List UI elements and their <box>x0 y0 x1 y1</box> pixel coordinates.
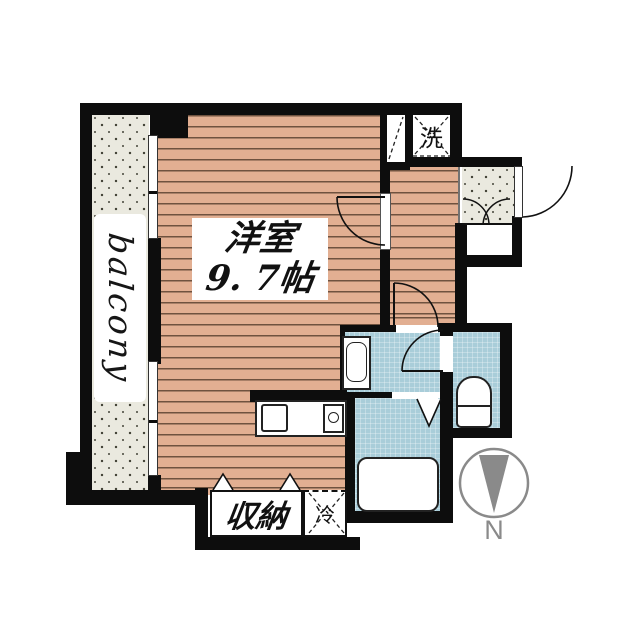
wall-northwest-block <box>150 108 188 138</box>
washroom-door-opening <box>396 325 438 333</box>
closet-label: 収納 <box>207 490 307 537</box>
room-name-text: 洋室 <box>222 219 298 259</box>
room-size-text: 9. 7帖 <box>203 259 317 299</box>
window-south <box>148 361 158 476</box>
stove-burner-icon <box>328 412 339 423</box>
hallway-floor <box>390 167 458 325</box>
compass-north-arrow-icon <box>479 455 509 513</box>
washbasin-bowl <box>346 342 367 382</box>
wall-shoebox-south <box>458 255 522 267</box>
toilet-door-opening <box>441 336 453 372</box>
wall-wash-bath-divider <box>345 392 392 398</box>
compass-north-label: N <box>478 516 510 544</box>
wall-bath-south <box>345 511 453 523</box>
wall-balcony-west <box>80 103 92 505</box>
bath-door-opening <box>392 392 438 399</box>
fridge-text: 冷 <box>315 499 335 528</box>
wall-genkan-north <box>405 157 522 167</box>
main-room-door-opening <box>380 193 391 250</box>
wall-hall-east <box>455 223 467 325</box>
compass-circle-icon <box>460 449 528 517</box>
wall-bath-east <box>440 372 453 523</box>
wall-room-east-lower <box>380 250 390 325</box>
entry-door-leaf <box>514 166 523 218</box>
closet-text: 収納 <box>222 491 290 536</box>
wall-toilet-east <box>500 326 512 438</box>
window-north-mullion <box>149 191 157 194</box>
washer-text: 洗 <box>420 119 443 153</box>
entrance-genkan-floor <box>462 167 514 225</box>
balcony-label: balcony <box>94 214 146 402</box>
toilet-fixture <box>456 376 492 428</box>
entry-door-swing-arc <box>523 166 572 217</box>
room-label: 洋室 9. 7帖 <box>192 218 328 300</box>
window-south-mullion <box>149 420 157 423</box>
wall-toilet-south <box>446 428 512 438</box>
washer-label: 洗 <box>413 115 450 157</box>
floor-plan: 洋室 9. 7帖 balcony 洗 収納 冷 N <box>0 0 640 640</box>
toilet-seat-line <box>458 405 490 407</box>
wall-between-windows <box>148 238 161 364</box>
balcony-text: balcony <box>101 231 140 386</box>
fridge-label: 冷 <box>303 490 347 537</box>
wall-south-west-section <box>66 490 208 505</box>
window-north <box>148 135 158 239</box>
wall-window-stub <box>148 475 161 497</box>
wall-closet-south <box>195 537 360 550</box>
wall-washroom-north <box>340 325 396 332</box>
compass-north-text: N <box>484 515 504 546</box>
wall-washer-left <box>405 110 413 164</box>
kitchen-sink <box>261 404 288 432</box>
bathtub <box>357 457 439 512</box>
pipe-space-box <box>387 115 405 162</box>
